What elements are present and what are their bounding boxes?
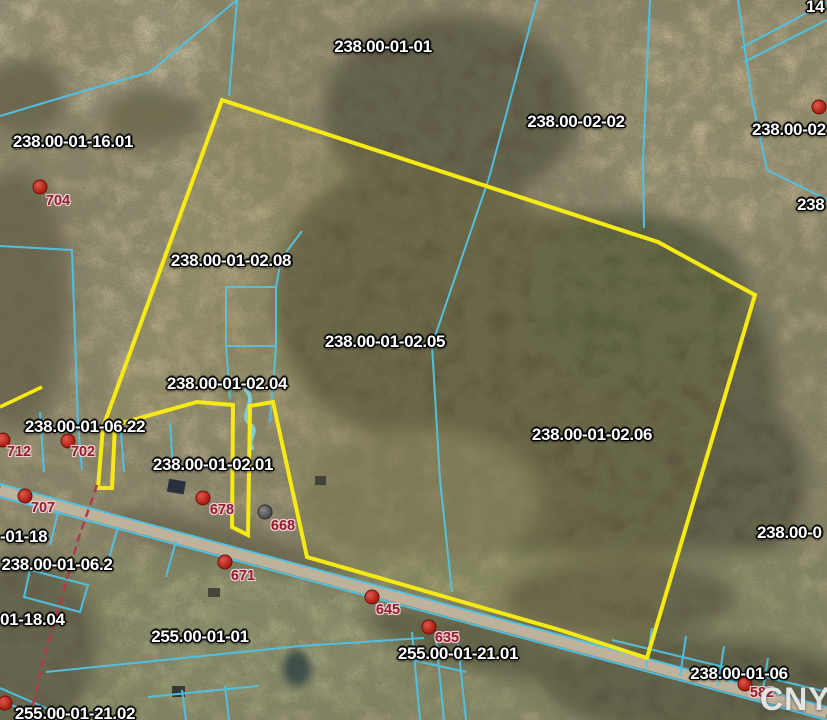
parcel-id-label: 238.00-02 (752, 120, 826, 140)
parcel-id-label: 238.00-01-01 (334, 37, 432, 57)
house-number-label: 707 (31, 500, 55, 516)
watermark-label: CNYIS (760, 681, 827, 718)
water-features (283, 650, 311, 686)
parcel-id-label: 238.00-01-02.06 (532, 425, 652, 445)
parcel-id-label: 01-18.04 (0, 610, 65, 630)
house-number-label: 704 (46, 193, 70, 209)
address-point-dot[interactable] (812, 100, 827, 115)
parcel-id-label: 238.00-02-02 (527, 112, 625, 132)
house-number-label: 702 (71, 444, 95, 460)
address-point-dot[interactable] (196, 491, 211, 506)
parcel-id-label: 14 (806, 0, 824, 17)
house-number-label: 668 (271, 518, 295, 534)
house-number-label: 645 (376, 602, 400, 618)
house-number-label: 712 (7, 444, 31, 460)
house-number-label: 671 (231, 568, 255, 584)
parcel-id-label: 255.00-01-21.01 (398, 644, 518, 664)
house-number-label: 678 (210, 502, 234, 518)
parcel-id-label: 238.00-01-06.2 (1, 555, 112, 575)
parcel-id-label: 238 (797, 195, 824, 215)
house-number-label: 635 (435, 630, 459, 646)
parcel-id-label: 238.00-01-16.01 (13, 132, 133, 152)
aerial-imagery-layer (0, 0, 827, 720)
parcel-id-label: 255.00-01-01 (151, 627, 249, 647)
parcel-id-label: 238.00-01-02.08 (171, 251, 291, 271)
parcel-map-viewport[interactable]: 238.00-01-01238.00-02-02238.00-022381423… (0, 0, 827, 720)
parcel-id-label: -01-18 (0, 527, 47, 547)
parcel-id-label: 238.00-01-02.04 (167, 374, 287, 394)
parcel-id-label: 238.00-0 (757, 523, 822, 543)
pond (283, 650, 311, 686)
parcel-id-label: 255.00-01-21.02 (15, 704, 135, 720)
parcel-id-label: 238.00-01-02.01 (153, 455, 273, 475)
parcel-id-label: 238.00-01-02.05 (325, 332, 445, 352)
parcel-id-label: 238.00-01-06.22 (25, 417, 145, 437)
